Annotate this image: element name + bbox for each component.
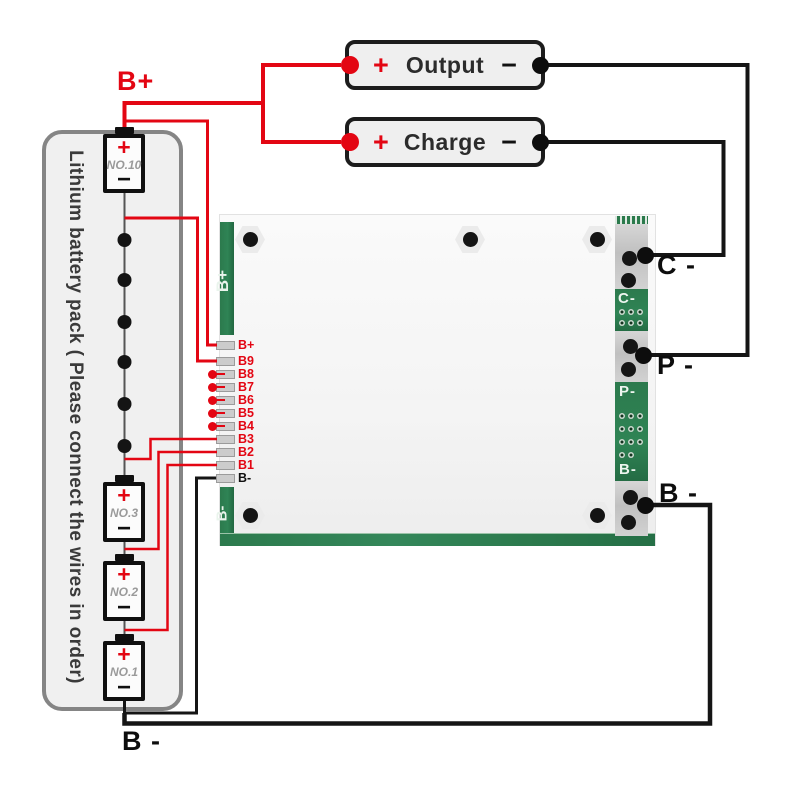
charge-plus-terminal-dot (341, 133, 359, 151)
wire-bplus-split (263, 65, 341, 142)
cell-terminal-nub (115, 554, 134, 561)
cell-plus: + (117, 485, 130, 505)
p-minus-wire-label: P - (657, 350, 694, 381)
b-minus-wire-label: B - (122, 726, 161, 757)
wire-bplus-main (125, 103, 264, 129)
battery-cell-no1: + NO.1 − (103, 641, 145, 701)
output-plus-terminal-dot (341, 56, 359, 74)
cminus-terminal-dot (637, 247, 654, 264)
cell-minus: − (117, 600, 131, 616)
cell-terminal-nub (115, 475, 134, 482)
cell-minus: − (117, 172, 131, 188)
output-connector: + Output − (345, 40, 545, 90)
cell-minus: − (117, 521, 131, 537)
c-minus-wire-label: C - (657, 250, 696, 281)
wire-b3 (125, 439, 218, 459)
wire-b9 (125, 218, 218, 361)
cell-plus: + (117, 644, 130, 664)
cell-minus: − (117, 680, 131, 696)
output-minus-terminal-dot (532, 57, 549, 74)
battery-pack-caption: Lithium battery pack ( Please connect th… (60, 138, 86, 696)
cell-terminal-nub (115, 634, 134, 641)
charge-minus: − (501, 127, 517, 158)
charge-connector: + Charge − (345, 117, 545, 167)
b-plus-wire-label: B+ (117, 66, 154, 97)
battery-cell-no3: + NO.3 − (103, 482, 145, 542)
cell-plus: + (117, 564, 130, 584)
cell-plus: + (117, 137, 130, 157)
battery-cell-no2: + NO.2 − (103, 561, 145, 621)
output-plus: + (373, 50, 389, 81)
pminus-terminal-dot (635, 347, 652, 364)
charge-plus: + (373, 127, 389, 158)
b-minus-right-wire-label: B - (659, 478, 698, 509)
output-minus: − (501, 50, 517, 81)
output-label: Output (389, 52, 501, 79)
wire-output-pminus (544, 65, 748, 355)
wire-charge-cminus (544, 142, 724, 255)
cell-terminal-nub (115, 127, 134, 134)
charge-label: Charge (389, 129, 501, 156)
wire-bminus-main (125, 505, 711, 724)
battery-cell-no10: + NO.10 − (103, 134, 145, 193)
bminus-terminal-dot (637, 497, 654, 514)
wiring-diagram: Lithium battery pack ( Please connect th… (0, 0, 800, 800)
charge-minus-terminal-dot (532, 134, 549, 151)
